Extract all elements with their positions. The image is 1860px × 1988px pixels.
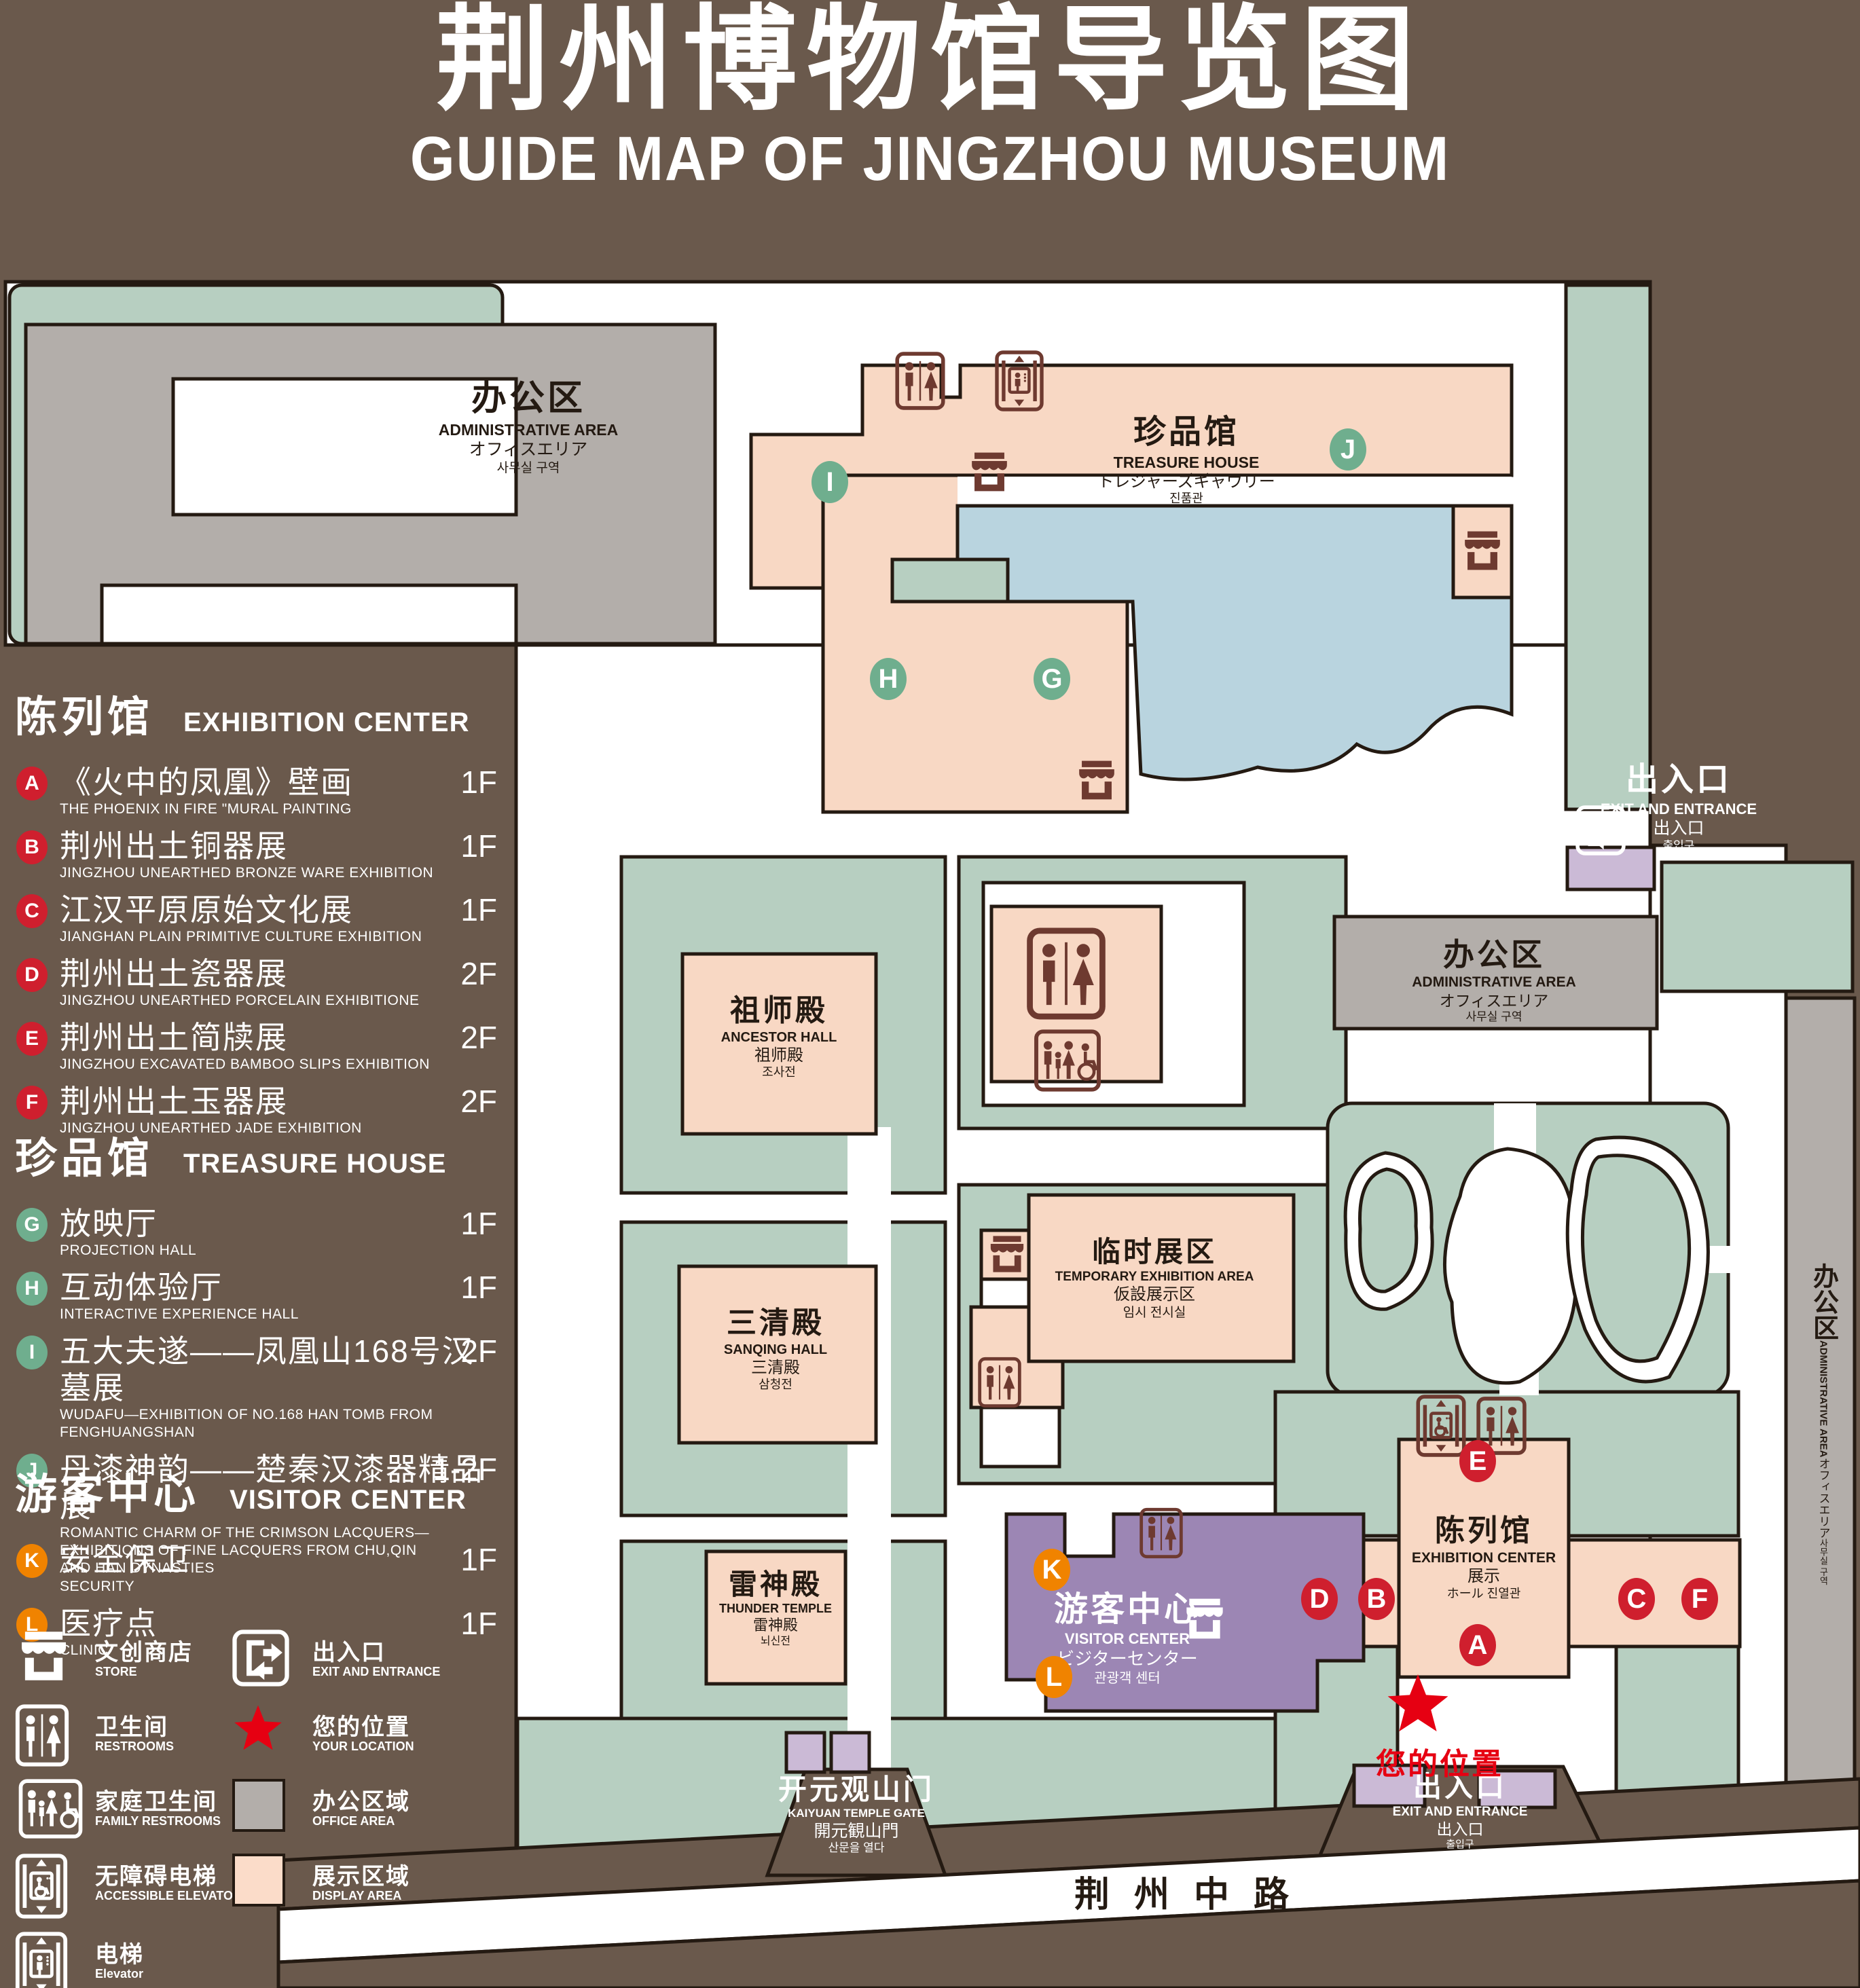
legend-item-zh: 《火中的凤凰》壁画	[60, 764, 497, 800]
section-title-zh: 游客中心	[15, 1460, 200, 1521]
legend-item-zh: 放映厅	[60, 1205, 497, 1242]
legend-item-floor: 1F	[460, 1269, 497, 1306]
legend-item-floor: 1F	[460, 1541, 497, 1578]
label-ja: オフィスエリア	[393, 439, 664, 460]
label-temporary-exhibition: 临时展区 TEMPORARY EXHIBITION AREA 仮設展示区 임시 …	[1005, 1234, 1304, 1321]
map-marker-j: J	[1330, 428, 1366, 471]
legend-item-b: B荆州出土铜器展JINGZHOU UNEARTHED BRONZE WARE E…	[15, 828, 497, 882]
label-exit-ne: 出入口 EXIT AND ENTRANCE 出入口 출입구	[1570, 760, 1787, 853]
label-ancestor-hall: 祖师殿 ANCESTOR HALL 祖师殿 조사전	[643, 993, 915, 1080]
store-icon	[1460, 530, 1505, 572]
map-marker-d: D	[1301, 1578, 1338, 1620]
label-zh: 珍品馆	[1044, 413, 1329, 453]
label-ja: オフィスエリア	[1358, 991, 1630, 1010]
label-ko: 사무실 구역	[1358, 1010, 1630, 1025]
label-ko: 사무실 구역	[393, 460, 664, 476]
legend-item-en: JINGZHOU UNEARTHED BRONZE WARE EXHIBITIO…	[60, 864, 440, 882]
symbol-label-en: EXIT AND ENTRANCE	[312, 1665, 440, 1679]
legend-symbol-accessible-elevator: 无障碍电梯ACCESSIBLE ELEVATOR	[15, 1854, 225, 1921]
label-ja: 雷神殿	[640, 1617, 911, 1635]
legend-item-zh: 荆州出土简牍展	[60, 1019, 497, 1056]
label-en: ANCESTOR HALL	[643, 1029, 915, 1046]
legend-item-floor: 2F	[460, 1083, 497, 1120]
legend-symbol-star: 您的位置YOUR LOCATION	[232, 1704, 443, 1772]
label-en: THUNDER TEMPLE	[640, 1602, 911, 1617]
label-ja: トレジャーズギャウリー	[1044, 472, 1329, 492]
label-admin-east: 办公区 ADMINISTRATIVE AREA オフィスエリア 사무실 구역	[1785, 1263, 1855, 1697]
restroom-icon	[15, 1704, 69, 1767]
label-ja: 祖师殿	[643, 1046, 915, 1065]
legend-item-floor: 1F	[460, 1205, 497, 1242]
label-en: TEMPORARY EXHIBITION AREA	[1005, 1269, 1304, 1285]
label-en: ADMINISTRATIVE AREA	[393, 420, 664, 439]
label-ja: ビジターセンター	[985, 1649, 1270, 1670]
label-ko: 사무실 구역	[1817, 1539, 1830, 1585]
legend-symbol-restroom: 卫生间RESTROOMS	[15, 1704, 225, 1772]
your-location-label: 您的位置	[1338, 1739, 1542, 1783]
legend-item-zh: 荆州出土玉器展	[60, 1083, 497, 1120]
symbol-label-en: DISPLAY AREA	[312, 1889, 401, 1903]
legend-section-title: 陈列馆EXHIBITION CENTER	[15, 682, 497, 743]
elevator-icon	[994, 350, 1044, 411]
section-title-zh: 珍品馆	[15, 1124, 153, 1185]
map-marker-l: L	[1036, 1656, 1072, 1698]
star-icon	[232, 1704, 284, 1753]
section-title-zh: 陈列馆	[15, 682, 153, 743]
symbol-label-en: STORE	[95, 1665, 137, 1679]
symbol-label-zh: 出入口	[312, 1634, 386, 1667]
label-zh: 陈列馆	[1348, 1513, 1620, 1549]
section-title-en: EXHIBITION CENTER	[183, 707, 469, 738]
label-treasure-house: 珍品馆 TREASURE HOUSE トレジャーズギャウリー 진품관	[1044, 413, 1329, 507]
label-zh: 临时展区	[1005, 1234, 1304, 1269]
label-admin-nw: 办公区 ADMINISTRATIVE AREA オフィスエリア 사무실 구역	[393, 378, 664, 476]
exit-icon	[232, 1630, 289, 1687]
restroom-icon	[1025, 927, 1107, 1020]
label-sanqing-hall: 三清殿 SANQING HALL 三清殿 삼청전	[640, 1305, 911, 1393]
legend-symbol-office: 办公区域OFFICE AREA	[232, 1779, 443, 1847]
label-zh: 开元观山门	[748, 1772, 965, 1807]
label-ko: 진품관	[1044, 492, 1329, 507]
label-zh: 三清殿	[640, 1305, 911, 1342]
legend-symbol-display: 展示区域DISPLAY AREA	[232, 1854, 443, 1921]
legend-section-title: 游客中心VISITOR CENTER	[15, 1460, 497, 1521]
legend-item-badge: I	[16, 1336, 48, 1369]
label-en: EXIT AND ENTRANCE	[1570, 800, 1787, 819]
office-area-swatch	[232, 1779, 285, 1832]
legend-section-title: 珍品馆TREASURE HOUSE	[15, 1124, 497, 1185]
legend-item-a: A《火中的凤凰》壁画THE PHOENIX IN FIRE "MURAL PAI…	[15, 764, 497, 818]
label-zh: 办公区	[393, 378, 664, 420]
label-gate: 开元观山门 KAIYUAN TEMPLE GATE 開元観山門 산문을 열다	[748, 1772, 965, 1856]
legend-symbol-family: 家庭卫生间FAMILY RESTROOMS	[15, 1779, 225, 1847]
label-visitor-center: 游客中心 VISITOR CENTER ビジターセンター 관광객 센터	[985, 1589, 1270, 1687]
label-ko: 임시 전시실	[1005, 1305, 1304, 1321]
symbol-label-zh: 电梯	[95, 1936, 144, 1969]
label-en: VISITOR CENTER	[985, 1630, 1270, 1649]
label-ja: 出入口	[1351, 1820, 1569, 1839]
label-ko: 관광객 센터	[985, 1670, 1270, 1687]
label-admin-mid: 办公区 ADMINISTRATIVE AREA オフィスエリア 사무실 구역	[1358, 936, 1630, 1025]
legend-item-badge: G	[16, 1208, 48, 1242]
label-ja: 三清殿	[640, 1358, 911, 1378]
store-icon	[1074, 759, 1119, 801]
label-en: ADMINISTRATIVE AREA	[1818, 1340, 1829, 1458]
legend-item-c: C江汉平原原始文化展JIANGHAN PLAIN PRIMITIVE CULTU…	[15, 891, 497, 946]
legend-item-g: G放映厅PROJECTION HALL1F	[15, 1205, 497, 1259]
road-name: 荆州中路	[1038, 1866, 1350, 1917]
label-en: ADMINISTRATIVE AREA	[1358, 974, 1630, 991]
symbol-label-zh: 家庭卫生间	[95, 1783, 217, 1816]
legend-item-badge: E	[16, 1022, 48, 1056]
accessible-elevator-icon	[1415, 1395, 1467, 1457]
symbol-label-zh: 无障碍电梯	[95, 1858, 217, 1891]
legend-item-d: D荆州出土瓷器展JINGZHOU UNEARTHED PORCELAIN EXH…	[15, 955, 497, 1010]
label-ko: 출입구	[1351, 1839, 1569, 1851]
label-en: TREASURE HOUSE	[1044, 453, 1329, 472]
legend-item-zh: 荆州出土铜器展	[60, 828, 497, 864]
symbol-label-zh: 展示区域	[312, 1858, 410, 1891]
label-ja: 出入口	[1570, 818, 1787, 839]
store-icon	[15, 1630, 73, 1682]
legend-item-floor: 1F	[460, 1605, 497, 1642]
legend-item-floor: 2F	[460, 955, 497, 992]
legend-symbol-exit: 出入口EXIT AND ENTRANCE	[232, 1630, 443, 1697]
legend-item-badge: A	[16, 767, 48, 800]
map-marker-b: B	[1358, 1578, 1395, 1620]
legend-item-badge: B	[16, 830, 48, 864]
label-thunder-temple: 雷神殿 THUNDER TEMPLE 雷神殿 뇌신전	[640, 1567, 911, 1649]
legend-item-en: WUDAFU—EXHIBITION OF NO.168 HAN TOMB FRO…	[60, 1406, 440, 1441]
symbol-label-zh: 您的位置	[312, 1708, 410, 1742]
label-zh: 雷神殿	[640, 1567, 911, 1602]
legend-item-floor: 2F	[460, 1333, 497, 1369]
legend-item-en: JIANGHAN PLAIN PRIMITIVE CULTURE EXHIBIT…	[60, 928, 440, 946]
legend-item-e: E荆州出土简牍展JINGZHOU EXCAVATED BAMBOO SLIPS …	[15, 1019, 497, 1073]
label-ja: オフィスエリア	[1815, 1458, 1832, 1539]
legend-item-en: INTERACTIVE EXPERIENCE HALL	[60, 1306, 440, 1323]
legend-item-zh: 互动体验厅	[60, 1269, 497, 1306]
legend-item-zh: 安全保卫	[60, 1541, 497, 1578]
map-marker-h: H	[870, 658, 907, 700]
restroom-icon	[895, 352, 945, 410]
family-icon	[15, 1779, 86, 1839]
display-area-swatch	[232, 1854, 285, 1907]
map-marker-c: C	[1618, 1578, 1655, 1620]
map-marker-f: F	[1681, 1578, 1718, 1620]
symbol-label-en: FAMILY RESTROOMS	[95, 1814, 221, 1828]
symbol-label-en: OFFICE AREA	[312, 1814, 395, 1828]
family-restroom-icon	[1032, 1029, 1103, 1092]
legend-item-zh: 五大夫遂——凤凰山168号汉墓展	[60, 1333, 497, 1406]
label-ja: 開元観山門	[748, 1821, 965, 1842]
legend-item-h: H互动体验厅INTERACTIVE EXPERIENCE HALL1F	[15, 1269, 497, 1323]
map-marker-g: G	[1034, 658, 1070, 700]
label-en: SANQING HALL	[640, 1342, 911, 1358]
legend-item-floor: 2F	[460, 1019, 497, 1056]
label-en: EXIT AND ENTRANCE	[1351, 1804, 1569, 1820]
symbol-label-zh: 文创商店	[95, 1634, 193, 1667]
legend-item-zh: 江汉平原原始文化展	[60, 891, 497, 928]
label-zh: 办公区	[1358, 936, 1630, 974]
legend-item-floor: 1F	[460, 764, 497, 800]
guide-map-poster: 荆州博物馆导览图 GUIDE MAP OF JINGZHOU MUSEUM	[0, 0, 1860, 1988]
legend-item-badge: H	[16, 1272, 48, 1306]
legend-item-en: PROJECTION HALL	[60, 1242, 440, 1259]
legend-item-en: JINGZHOU EXCAVATED BAMBOO SLIPS EXHIBITI…	[60, 1056, 440, 1073]
label-en: EXHIBITION CENTER	[1348, 1549, 1620, 1567]
symbol-label-en: YOUR LOCATION	[312, 1739, 414, 1754]
label-zh: 祖师殿	[643, 993, 915, 1029]
legend-item-en: SECURITY	[60, 1578, 440, 1596]
legend-item-en: JINGZHOU UNEARTHED PORCELAIN EXHIBITIONE	[60, 992, 440, 1010]
store-icon	[967, 451, 1012, 493]
symbol-label-zh: 办公区域	[312, 1783, 410, 1816]
restroom-icon	[1139, 1507, 1183, 1559]
map-marker-i: I	[812, 461, 848, 503]
label-ko: 삼청전	[640, 1378, 911, 1393]
elevator-icon	[15, 1932, 68, 1988]
label-ko: 산문을 열다	[748, 1841, 965, 1856]
legend-item-badge: K	[16, 1544, 48, 1578]
label-zh: 游客中心	[985, 1589, 1270, 1630]
legend-symbol-elevator: 电梯Elevator	[15, 1932, 225, 1988]
legend-item-badge: C	[16, 894, 48, 928]
legend-item-k: K安全保卫SECURITY1F	[15, 1541, 497, 1596]
label-zh: 办公区	[1805, 1263, 1842, 1340]
restroom-icon	[978, 1357, 1021, 1408]
section-title-en: VISITOR CENTER	[230, 1485, 467, 1515]
accessible-elevator-icon	[15, 1854, 68, 1919]
legend-section-exhibition-center: 陈列馆EXHIBITION CENTERA《火中的凤凰》壁画THE PHOENI…	[15, 682, 497, 1147]
label-ko: 조사전	[643, 1065, 915, 1080]
your-location-star-icon	[1385, 1673, 1451, 1735]
label-ko: 뇌신전	[640, 1635, 911, 1649]
map-marker-e: E	[1459, 1440, 1496, 1482]
label-en: KAIYUAN TEMPLE GATE	[748, 1807, 965, 1821]
symbol-label-zh: 卫生间	[95, 1708, 168, 1742]
symbol-label-en: Elevator	[95, 1967, 143, 1981]
symbol-label-en: ACCESSIBLE ELEVATOR	[95, 1889, 242, 1903]
legend-item-floor: 1F	[460, 891, 497, 928]
map-marker-k: K	[1034, 1549, 1070, 1591]
label-ko: 출입구	[1570, 839, 1787, 853]
legend-item-i: I五大夫遂——凤凰山168号汉墓展WUDAFU—EXHIBITION OF NO…	[15, 1333, 497, 1441]
label-ja: 仮設展示区	[1005, 1285, 1304, 1304]
legend-item-floor: 1F	[460, 828, 497, 864]
map-marker-a: A	[1459, 1624, 1496, 1666]
legend-item-zh: 荆州出土瓷器展	[60, 955, 497, 992]
legend-item-badge: F	[16, 1086, 48, 1120]
legend-item-badge: D	[16, 958, 48, 992]
legend-symbol-store: 文创商店STORE	[15, 1630, 225, 1697]
symbol-label-en: RESTROOMS	[95, 1739, 174, 1754]
legend-item-en: THE PHOENIX IN FIRE "MURAL PAINTING	[60, 800, 440, 818]
label-zh: 出入口	[1570, 760, 1787, 800]
section-title-en: TREASURE HOUSE	[183, 1149, 446, 1179]
